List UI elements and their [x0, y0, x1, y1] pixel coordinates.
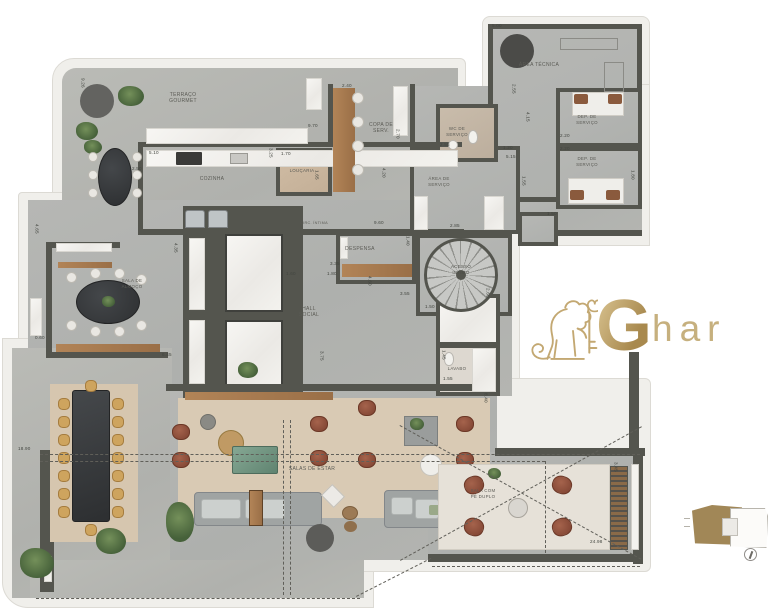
dimension: 1.80 [630, 170, 635, 180]
chair [112, 416, 124, 428]
armchair [172, 424, 190, 440]
room-label-dep-servico-2: DEP. DE SERVIÇO [572, 156, 602, 167]
kitchen-counter [146, 128, 308, 144]
room-label-terraco-gourmet: TERRAÇO GOURMET [160, 92, 206, 105]
cabinet [414, 196, 428, 230]
dimension: 1.40 [405, 236, 410, 246]
dimension: 2.20 [560, 134, 570, 139]
wall [428, 554, 643, 562]
dimension: 5.10 [149, 151, 159, 156]
room-label-salas-estar: SALAS DE ESTAR [280, 466, 344, 472]
sofa-table [249, 490, 263, 526]
dimension: 1.60 [286, 272, 296, 277]
dimension: 2.85 [450, 224, 460, 229]
chair [112, 398, 124, 410]
plant [96, 528, 126, 554]
wall [410, 84, 415, 148]
pillow [574, 94, 588, 104]
chair [352, 116, 364, 128]
dimension: 2.20 [560, 147, 570, 152]
key-plan-ticks [684, 526, 690, 527]
chair [90, 326, 101, 337]
projection-line [432, 566, 640, 567]
room-label-copa: COPA DE SERV. [366, 122, 396, 135]
vanity-counter [472, 348, 496, 392]
chair [352, 164, 364, 176]
chair [112, 506, 124, 518]
dimension: 4.65 [34, 224, 39, 234]
dimension: 1.50 [547, 212, 557, 217]
projection-line [40, 454, 640, 455]
dimension: 2.60 [485, 288, 490, 298]
dimension: 3.55 [400, 292, 410, 297]
coffee-table-plants [232, 446, 278, 474]
window [56, 243, 112, 252]
dimension: 1.55 [521, 176, 526, 186]
dimension: 1.70 [281, 152, 291, 157]
key-plan-ticks [684, 518, 690, 519]
slatted-bench [610, 466, 628, 550]
chair [58, 398, 70, 410]
chair [352, 140, 364, 152]
dimension: 4.60 [367, 276, 372, 286]
plant [20, 548, 54, 578]
console [58, 262, 112, 268]
wall [629, 352, 639, 454]
stove-icon [176, 152, 202, 165]
chair [112, 488, 124, 500]
plant [410, 418, 424, 430]
dimension: 2.55 [440, 143, 450, 148]
room-label-sala-pe-duplo: SALA COM PÉ DUPLO [464, 488, 502, 499]
dimension: 4.35 [173, 243, 178, 253]
dimension: 3.35 [330, 262, 340, 267]
plant [118, 86, 144, 106]
dimension: 2.55 [511, 84, 516, 94]
armchair [456, 416, 474, 432]
room-corridor-stub [518, 212, 558, 246]
chair [85, 380, 97, 392]
key-plan [684, 500, 768, 564]
chair [114, 326, 125, 337]
center-table [508, 498, 528, 518]
dimension: 3.45 [613, 462, 618, 472]
dimension: 1.45 [441, 350, 446, 360]
wall [46, 242, 52, 358]
equipment [560, 38, 618, 50]
dimension: 9.26 [80, 78, 85, 88]
dimension: 1.20 [503, 146, 513, 151]
pillow [606, 190, 620, 200]
chair [112, 434, 124, 446]
elevator-shaft [225, 320, 283, 390]
dimension: 18.90 [18, 447, 31, 452]
dimension: 9.70 [308, 124, 318, 129]
pantry-shelf [342, 264, 412, 277]
dimension: 1.50 [425, 305, 435, 310]
dimension: 0.60 [35, 336, 45, 341]
side-table [200, 414, 216, 430]
dimension: 6.45 [162, 353, 172, 358]
chair [88, 152, 98, 162]
plant [76, 122, 98, 140]
dimension: 3.75 [319, 351, 324, 361]
room-label-cozinha: COZINHA [192, 176, 232, 182]
grill-icon [80, 84, 114, 118]
chair [132, 188, 142, 198]
wall [556, 230, 642, 236]
chair [112, 470, 124, 482]
plant [238, 362, 258, 378]
dimension: 4.15 [525, 112, 530, 122]
brand-letter-g: G [596, 290, 652, 362]
chair [90, 268, 101, 279]
room-label-despensa: DESPENSA [338, 246, 382, 252]
dimension: 2.40 [342, 84, 352, 89]
room-label-wc-servico: WC DE SERVIÇO [442, 126, 472, 137]
pouf [342, 506, 358, 520]
room-label-dep-servico-1: DEP. DE SERVIÇO [572, 114, 602, 125]
window [30, 298, 42, 336]
chair [58, 470, 70, 482]
room-label-sala-almoco: SALA DE ALMOÇO [116, 278, 148, 289]
dimension: 4.20 [381, 168, 386, 178]
compass-needle [749, 551, 754, 559]
sideboard [56, 344, 160, 352]
chair [88, 170, 98, 180]
key-plan-core [722, 518, 738, 536]
chair [66, 272, 77, 283]
chair [132, 152, 142, 162]
chair [88, 188, 98, 198]
dimension: 1.55 [443, 377, 453, 382]
room-label-lavabo: LAVABO [442, 366, 472, 372]
dimension: 1.65 [314, 170, 319, 180]
room-label-hall-social: HALL SOCIAL [294, 306, 324, 319]
brand-suffix: har [652, 310, 726, 347]
chair [352, 92, 364, 104]
dimension: 2.50 [132, 167, 142, 172]
dimension: 5.15 [506, 155, 516, 160]
cushion [391, 497, 413, 515]
washer-icon [185, 210, 205, 228]
cabinet [484, 196, 504, 230]
dimension: 2.70 [395, 129, 400, 139]
elevator-door [189, 238, 205, 310]
dimension: 3.25 [268, 148, 273, 158]
wall [46, 352, 168, 358]
chair [58, 488, 70, 500]
fridge-column [306, 78, 322, 110]
washer-icon [208, 210, 228, 228]
pillow [570, 190, 584, 200]
sink-icon [230, 153, 248, 164]
brand-logo: G har [520, 288, 740, 362]
chair [85, 524, 97, 536]
armchair [358, 400, 376, 416]
room-label-circ-intima: CIRC. ÍNTIMA [294, 221, 334, 226]
dimension: 24.98 [590, 540, 603, 545]
armchair [310, 416, 328, 432]
chair [58, 506, 70, 518]
armchair [310, 450, 328, 466]
terrace-table-oval [98, 148, 132, 206]
dimension: 8.40 [483, 393, 488, 403]
chair [136, 320, 147, 331]
wall [166, 384, 497, 391]
room-label-acesso-intimo: ACESSO ÍNTIMO [444, 264, 478, 275]
cushion [201, 499, 241, 519]
window [631, 464, 639, 550]
long-dining-table [72, 390, 110, 522]
floor-terrace-bottom [30, 560, 364, 598]
dimension: 1.80 [327, 272, 337, 277]
lion-key-icon [520, 292, 598, 362]
fire-pit-icon [306, 524, 334, 552]
room-label-area-servico: ÁREA DE SERVIÇO [422, 176, 456, 187]
plant [166, 502, 194, 542]
plant [102, 296, 115, 307]
dimension: 5.00 [492, 24, 502, 29]
elevator-door [189, 320, 205, 384]
copa-cabinet [333, 88, 355, 192]
floor-plan-canvas: TERRAÇO GOURMET COZINHA COPA DE SERV. LO… [0, 0, 768, 611]
elevator-shaft [225, 234, 283, 312]
pillow [608, 94, 622, 104]
projection-line [290, 420, 291, 595]
projection-line [36, 598, 360, 599]
console [185, 392, 333, 400]
dimension: 9.60 [374, 221, 384, 226]
projection-line [40, 461, 545, 462]
room-label-area-tecnica: ÁREA TÉCNICA [516, 62, 562, 68]
compass-icon [744, 548, 757, 561]
chair [66, 320, 77, 331]
projection-line [283, 420, 284, 595]
pouf [344, 521, 357, 532]
chair [58, 416, 70, 428]
chair [58, 434, 70, 446]
equipment [604, 62, 624, 92]
